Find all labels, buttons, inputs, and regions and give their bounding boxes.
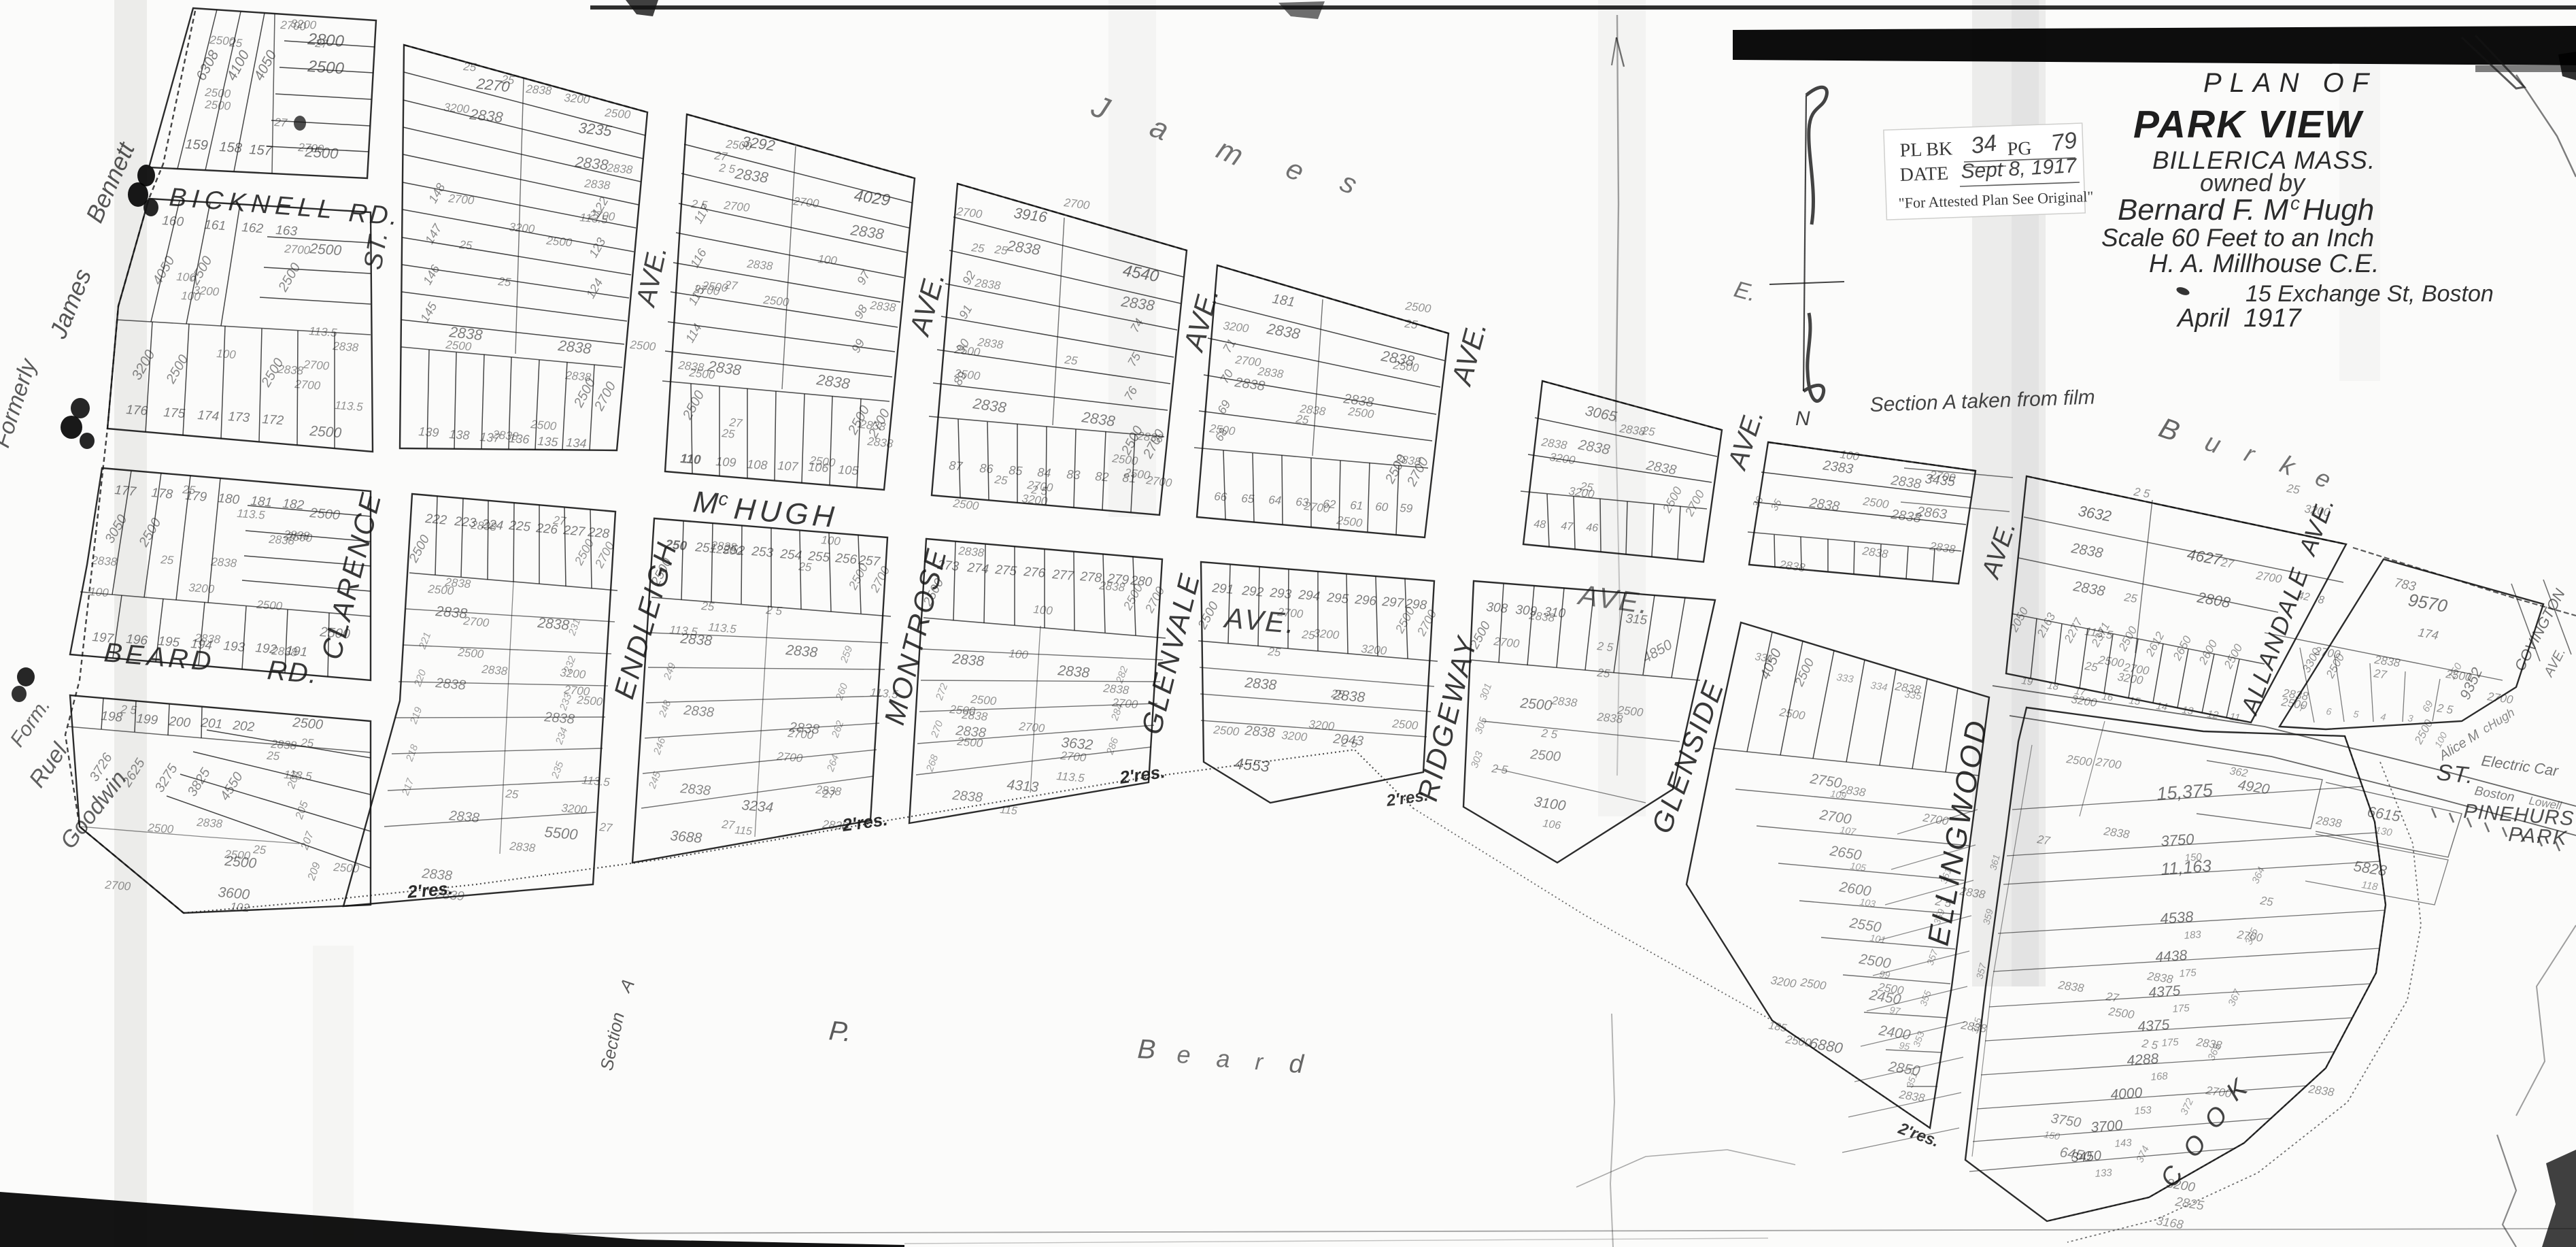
svg-text:47: 47 bbox=[1561, 520, 1574, 533]
svg-text:H. A. Millhouse C.E.: H. A. Millhouse C.E. bbox=[2149, 250, 2379, 278]
svg-text:4375: 4375 bbox=[2137, 1017, 2171, 1035]
svg-text:222: 222 bbox=[424, 512, 448, 528]
svg-text:256: 256 bbox=[834, 551, 858, 567]
svg-text:2838: 2838 bbox=[277, 363, 305, 378]
svg-text:25: 25 bbox=[721, 427, 736, 441]
svg-text:100: 100 bbox=[216, 347, 237, 361]
svg-text:3234: 3234 bbox=[741, 797, 775, 816]
svg-text:2838: 2838 bbox=[679, 781, 711, 799]
svg-text:61: 61 bbox=[1350, 499, 1363, 512]
svg-text:65: 65 bbox=[1241, 492, 1255, 505]
svg-text:168: 168 bbox=[2150, 1070, 2169, 1083]
svg-text:2838: 2838 bbox=[268, 533, 296, 548]
svg-text:c: c bbox=[717, 488, 729, 510]
svg-text:c: c bbox=[2290, 193, 2300, 214]
svg-text:27: 27 bbox=[2372, 667, 2388, 682]
svg-text:2 5: 2 5 bbox=[2435, 701, 2454, 716]
svg-text:227: 227 bbox=[562, 523, 587, 539]
svg-text:2500: 2500 bbox=[1391, 717, 1419, 732]
svg-text:15 Exchange St, Boston: 15 Exchange St, Boston bbox=[2245, 281, 2494, 307]
svg-text:3200: 3200 bbox=[443, 101, 471, 116]
svg-text:25: 25 bbox=[462, 60, 477, 74]
svg-text:2838: 2838 bbox=[492, 428, 520, 443]
svg-text:2500: 2500 bbox=[457, 646, 485, 661]
svg-text:2838: 2838 bbox=[525, 82, 553, 97]
svg-text:2838: 2838 bbox=[537, 615, 571, 633]
svg-text:25: 25 bbox=[994, 243, 1009, 257]
svg-text:27: 27 bbox=[273, 116, 288, 129]
svg-text:158: 158 bbox=[219, 139, 243, 156]
svg-text:202: 202 bbox=[232, 718, 256, 735]
svg-text:2838: 2838 bbox=[683, 703, 715, 720]
svg-text:2838: 2838 bbox=[564, 369, 592, 384]
svg-text:2500: 2500 bbox=[956, 735, 984, 750]
svg-text:275: 275 bbox=[994, 563, 1018, 579]
svg-text:P.: P. bbox=[828, 1016, 852, 1048]
svg-text:2 5: 2 5 bbox=[690, 197, 709, 212]
svg-text:15,375: 15,375 bbox=[2156, 780, 2214, 804]
svg-text:27: 27 bbox=[713, 149, 728, 163]
svg-text:46: 46 bbox=[1586, 522, 1599, 534]
svg-text:25: 25 bbox=[160, 553, 175, 567]
svg-text:2838: 2838 bbox=[1102, 682, 1130, 697]
svg-text:172: 172 bbox=[262, 412, 285, 428]
svg-text:291: 291 bbox=[1211, 581, 1234, 597]
svg-text:3200: 3200 bbox=[509, 220, 536, 235]
svg-text:2500: 2500 bbox=[333, 861, 360, 876]
svg-text:25: 25 bbox=[1596, 666, 1611, 680]
svg-text:2 5: 2 5 bbox=[765, 603, 783, 618]
svg-text:176: 176 bbox=[126, 403, 149, 418]
svg-text:2838: 2838 bbox=[951, 651, 985, 669]
svg-text:66: 66 bbox=[1214, 490, 1228, 503]
svg-text:183: 183 bbox=[2184, 929, 2202, 942]
svg-text:2500: 2500 bbox=[147, 821, 175, 836]
svg-text:2838: 2838 bbox=[821, 818, 849, 833]
svg-text:2838: 2838 bbox=[1244, 723, 1276, 741]
svg-text:250: 250 bbox=[664, 537, 688, 554]
svg-text:293: 293 bbox=[1269, 586, 1293, 602]
svg-text:27: 27 bbox=[724, 278, 739, 293]
svg-text:2700: 2700 bbox=[303, 358, 331, 373]
svg-text:25: 25 bbox=[994, 473, 1009, 487]
svg-text:d: d bbox=[1289, 1050, 1306, 1079]
svg-text:19: 19 bbox=[2020, 675, 2034, 688]
svg-text:175: 175 bbox=[2172, 1002, 2190, 1015]
svg-text:25: 25 bbox=[2083, 659, 2099, 674]
svg-text:292: 292 bbox=[1241, 584, 1265, 600]
svg-text:109: 109 bbox=[715, 454, 736, 469]
svg-text:83: 83 bbox=[1066, 467, 1081, 482]
svg-text:2500: 2500 bbox=[949, 703, 977, 718]
svg-text:200: 200 bbox=[168, 714, 192, 731]
svg-text:25: 25 bbox=[2258, 894, 2274, 909]
svg-text:25: 25 bbox=[505, 787, 520, 801]
svg-text:48: 48 bbox=[1533, 518, 1546, 531]
svg-text:27: 27 bbox=[2035, 833, 2051, 848]
svg-text:2838: 2838 bbox=[509, 839, 537, 854]
svg-text:175: 175 bbox=[2179, 967, 2197, 980]
svg-text:113.5: 113.5 bbox=[1056, 769, 1085, 785]
svg-text:95: 95 bbox=[1899, 1040, 1911, 1052]
svg-text:102: 102 bbox=[230, 900, 250, 914]
svg-text:M: M bbox=[692, 485, 719, 520]
svg-text:2839: 2839 bbox=[435, 887, 465, 904]
svg-text:87: 87 bbox=[949, 459, 964, 473]
svg-text:99: 99 bbox=[1879, 968, 1891, 980]
svg-text:100: 100 bbox=[817, 252, 838, 267]
svg-text:2700: 2700 bbox=[1018, 720, 1046, 735]
svg-text:2500: 2500 bbox=[629, 338, 657, 353]
svg-text:2500: 2500 bbox=[204, 98, 232, 113]
svg-text:107: 107 bbox=[777, 459, 799, 473]
svg-text:228: 228 bbox=[587, 525, 611, 542]
svg-text:3200: 3200 bbox=[188, 581, 216, 596]
svg-text:113.5: 113.5 bbox=[309, 325, 338, 339]
svg-text:2838: 2838 bbox=[1057, 663, 1091, 681]
svg-text:199: 199 bbox=[136, 712, 159, 728]
svg-text:PL BK: PL BK bbox=[1899, 138, 1953, 161]
svg-text:157: 157 bbox=[249, 142, 273, 159]
svg-text:115: 115 bbox=[734, 825, 753, 837]
svg-text:225: 225 bbox=[508, 518, 532, 535]
svg-text:2838: 2838 bbox=[957, 544, 985, 559]
svg-text:2838: 2838 bbox=[468, 105, 504, 126]
svg-text:2500: 2500 bbox=[292, 715, 324, 733]
svg-text:182: 182 bbox=[282, 497, 305, 513]
svg-text:2838: 2838 bbox=[1244, 675, 1278, 693]
svg-text:27: 27 bbox=[2104, 990, 2120, 1005]
svg-text:163: 163 bbox=[275, 223, 299, 239]
svg-text:2838: 2838 bbox=[271, 644, 299, 659]
svg-text:2700: 2700 bbox=[462, 614, 490, 629]
svg-text:Scale 60 Feet to an Inch: Scale 60 Feet to an Inch bbox=[2101, 224, 2374, 252]
svg-text:160: 160 bbox=[162, 214, 185, 229]
svg-text:153: 153 bbox=[2134, 1104, 2152, 1117]
svg-text:201: 201 bbox=[200, 716, 223, 732]
svg-text:25: 25 bbox=[1064, 353, 1079, 367]
svg-text:113.5: 113.5 bbox=[581, 774, 611, 789]
svg-text:2838: 2838 bbox=[543, 710, 575, 727]
svg-text:B: B bbox=[1137, 1034, 1157, 1065]
svg-text:5500: 5500 bbox=[544, 823, 579, 843]
svg-text:4538: 4538 bbox=[2160, 908, 2194, 927]
svg-text:3235: 3235 bbox=[577, 119, 613, 139]
svg-text:333: 333 bbox=[1835, 671, 1854, 685]
svg-text:25: 25 bbox=[228, 36, 243, 50]
svg-text:297: 297 bbox=[1381, 595, 1406, 611]
svg-text:25: 25 bbox=[182, 483, 197, 497]
svg-text:25: 25 bbox=[1330, 687, 1345, 701]
svg-text:273: 273 bbox=[936, 558, 960, 574]
svg-text:2838: 2838 bbox=[470, 518, 498, 533]
svg-text:2700: 2700 bbox=[787, 727, 815, 742]
svg-text:a: a bbox=[1216, 1044, 1231, 1073]
svg-text:115: 115 bbox=[1000, 804, 1018, 817]
svg-text:2500: 2500 bbox=[309, 505, 341, 523]
svg-text:100: 100 bbox=[89, 585, 109, 599]
svg-text:2838: 2838 bbox=[421, 866, 453, 884]
svg-text:100: 100 bbox=[1009, 647, 1029, 661]
svg-text:85: 85 bbox=[1009, 463, 1023, 478]
svg-text:296: 296 bbox=[1354, 593, 1378, 609]
svg-text:2 5: 2 5 bbox=[2140, 1037, 2159, 1052]
svg-text:295: 295 bbox=[1326, 591, 1350, 607]
svg-text:86: 86 bbox=[979, 461, 994, 476]
svg-text:2 5: 2 5 bbox=[1933, 895, 1952, 910]
svg-text:25: 25 bbox=[252, 843, 267, 857]
svg-text:27: 27 bbox=[2219, 556, 2235, 571]
svg-text:2500: 2500 bbox=[1529, 747, 1561, 765]
svg-text:2500: 2500 bbox=[1519, 695, 1553, 714]
svg-text:2838: 2838 bbox=[1098, 579, 1126, 594]
svg-text:2838: 2838 bbox=[90, 554, 118, 569]
svg-text:113.5: 113.5 bbox=[284, 768, 313, 783]
svg-text:315: 315 bbox=[1625, 612, 1648, 628]
svg-text:2500: 2500 bbox=[445, 338, 473, 353]
svg-text:25: 25 bbox=[300, 736, 315, 750]
svg-text:135: 135 bbox=[537, 434, 559, 449]
svg-text:3200: 3200 bbox=[1308, 718, 1336, 733]
svg-text:308: 308 bbox=[1486, 600, 1509, 616]
svg-text:2700: 2700 bbox=[104, 878, 132, 893]
svg-text:25: 25 bbox=[1640, 424, 1656, 439]
svg-text:277: 277 bbox=[1051, 567, 1076, 584]
svg-text:82: 82 bbox=[1095, 469, 1109, 484]
svg-text:4438: 4438 bbox=[2155, 948, 2188, 965]
svg-text:2 5: 2 5 bbox=[1340, 736, 1359, 750]
svg-text:193: 193 bbox=[223, 639, 246, 655]
svg-text:174: 174 bbox=[197, 408, 220, 424]
svg-text:2700: 2700 bbox=[588, 208, 616, 223]
svg-text:105: 105 bbox=[838, 463, 860, 478]
svg-text:2838: 2838 bbox=[710, 539, 738, 554]
svg-text:2838: 2838 bbox=[785, 642, 819, 661]
svg-text:2500: 2500 bbox=[224, 848, 252, 863]
svg-text:2500: 2500 bbox=[530, 418, 558, 433]
svg-text:2838: 2838 bbox=[210, 555, 238, 570]
svg-text:178: 178 bbox=[151, 486, 174, 502]
svg-text:3200: 3200 bbox=[1281, 729, 1308, 744]
svg-text:253: 253 bbox=[751, 544, 775, 561]
svg-text:274: 274 bbox=[966, 561, 989, 577]
svg-text:133: 133 bbox=[2095, 1167, 2113, 1180]
svg-text:3200: 3200 bbox=[1313, 627, 1340, 642]
svg-text:3200: 3200 bbox=[561, 801, 588, 816]
svg-text:177: 177 bbox=[114, 483, 138, 499]
svg-text:2700: 2700 bbox=[279, 18, 307, 33]
svg-text:27: 27 bbox=[314, 37, 329, 50]
svg-text:2838: 2838 bbox=[573, 153, 609, 173]
svg-text:2838: 2838 bbox=[435, 676, 467, 693]
svg-text:2838: 2838 bbox=[481, 663, 509, 678]
svg-text:2700: 2700 bbox=[1111, 696, 1139, 711]
svg-text:59: 59 bbox=[1400, 501, 1414, 515]
svg-text:DATE: DATE bbox=[1899, 163, 1949, 186]
svg-text:25: 25 bbox=[266, 749, 281, 763]
svg-text:2700: 2700 bbox=[294, 378, 322, 393]
svg-text:2 5: 2 5 bbox=[1491, 762, 1509, 777]
svg-text:N: N bbox=[1795, 408, 1810, 430]
svg-text:173: 173 bbox=[228, 410, 251, 425]
svg-text:108: 108 bbox=[747, 457, 768, 472]
svg-text:100: 100 bbox=[1033, 603, 1053, 617]
svg-text:3700: 3700 bbox=[2090, 1118, 2124, 1135]
svg-text:ST.: ST. bbox=[2435, 759, 2475, 789]
svg-text:3200: 3200 bbox=[560, 666, 587, 681]
svg-text:180: 180 bbox=[218, 491, 241, 508]
svg-text:110: 110 bbox=[680, 452, 702, 467]
svg-text:25: 25 bbox=[501, 73, 515, 87]
svg-text:4375: 4375 bbox=[2148, 983, 2182, 1001]
svg-text:25: 25 bbox=[458, 238, 473, 252]
svg-text:27: 27 bbox=[721, 818, 736, 832]
svg-text:2 5: 2 5 bbox=[1596, 639, 1614, 654]
svg-text:2838: 2838 bbox=[270, 737, 298, 752]
svg-text:100: 100 bbox=[1839, 448, 1860, 463]
svg-text:PARK VIEW: PARK VIEW bbox=[2133, 103, 2364, 146]
svg-text:3750: 3750 bbox=[2160, 831, 2195, 850]
svg-text:2500: 2500 bbox=[1213, 723, 1240, 738]
svg-text:334: 334 bbox=[1869, 680, 1888, 693]
svg-text:2838: 2838 bbox=[815, 783, 843, 798]
svg-text:2838: 2838 bbox=[951, 788, 983, 805]
svg-text:161: 161 bbox=[204, 218, 226, 233]
svg-text:2700: 2700 bbox=[284, 242, 311, 257]
svg-text:27: 27 bbox=[552, 514, 567, 528]
svg-text:2 5: 2 5 bbox=[1540, 727, 1559, 742]
svg-text:2700: 2700 bbox=[776, 750, 804, 765]
svg-text:134: 134 bbox=[566, 435, 587, 450]
svg-text:2 5: 2 5 bbox=[2132, 485, 2151, 501]
svg-text:276: 276 bbox=[1023, 565, 1047, 581]
svg-text:113.5: 113.5 bbox=[237, 507, 266, 522]
svg-text:113.5: 113.5 bbox=[708, 620, 737, 636]
svg-text:PLAN OF: PLAN OF bbox=[2203, 68, 2377, 98]
svg-text:25: 25 bbox=[1267, 645, 1282, 659]
svg-text:2500: 2500 bbox=[309, 423, 343, 441]
svg-text:4288: 4288 bbox=[2126, 1051, 2160, 1069]
svg-text:25: 25 bbox=[798, 560, 813, 574]
svg-text:64: 64 bbox=[1268, 493, 1282, 507]
svg-text:3200: 3200 bbox=[1361, 642, 1388, 657]
svg-text:PARK: PARK bbox=[2508, 823, 2569, 850]
svg-text:100: 100 bbox=[821, 533, 841, 548]
svg-text:60: 60 bbox=[1375, 500, 1389, 514]
svg-text:34: 34 bbox=[1969, 130, 1999, 159]
svg-text:79: 79 bbox=[2050, 127, 2079, 156]
svg-text:RD.: RD. bbox=[266, 655, 319, 689]
svg-text:175: 175 bbox=[2161, 1036, 2180, 1049]
svg-text:2500: 2500 bbox=[256, 598, 284, 613]
svg-text:4000: 4000 bbox=[2110, 1085, 2143, 1103]
svg-text:11,163: 11,163 bbox=[2160, 857, 2211, 879]
svg-text:159: 159 bbox=[185, 137, 209, 153]
svg-text:2838: 2838 bbox=[556, 337, 592, 357]
svg-text:3200: 3200 bbox=[193, 284, 220, 299]
svg-text:April 1917: April 1917 bbox=[2176, 304, 2303, 333]
svg-text:e: e bbox=[1176, 1040, 1191, 1069]
svg-text:2 5: 2 5 bbox=[120, 703, 137, 717]
svg-text:3688: 3688 bbox=[670, 828, 703, 846]
svg-text:139: 139 bbox=[418, 425, 439, 439]
svg-text:4553: 4553 bbox=[1234, 754, 1270, 775]
svg-text:2700: 2700 bbox=[1276, 605, 1304, 620]
svg-text:2700: 2700 bbox=[563, 683, 591, 698]
svg-text:2500: 2500 bbox=[604, 106, 632, 121]
svg-text:25: 25 bbox=[1404, 317, 1419, 331]
svg-text:175: 175 bbox=[163, 405, 186, 421]
svg-text:2500: 2500 bbox=[309, 241, 343, 259]
svg-text:4313: 4313 bbox=[1006, 777, 1040, 795]
svg-text:2500: 2500 bbox=[307, 57, 345, 78]
svg-text:Hugh: Hugh bbox=[2303, 193, 2374, 227]
svg-text:2700: 2700 bbox=[447, 192, 475, 207]
svg-text:2700: 2700 bbox=[1060, 749, 1087, 764]
svg-text:162: 162 bbox=[241, 220, 265, 236]
svg-text:138: 138 bbox=[449, 427, 470, 442]
svg-text:RD.: RD. bbox=[348, 199, 401, 231]
svg-text:2500: 2500 bbox=[545, 234, 573, 249]
svg-text:2 5: 2 5 bbox=[718, 161, 736, 176]
svg-text:2838: 2838 bbox=[448, 808, 480, 826]
svg-text:18: 18 bbox=[2046, 680, 2060, 693]
svg-text:27: 27 bbox=[598, 820, 613, 835]
svg-text:25: 25 bbox=[2285, 482, 2301, 497]
svg-text:113.5: 113.5 bbox=[335, 399, 364, 414]
svg-text:3200: 3200 bbox=[564, 91, 591, 106]
svg-text:25: 25 bbox=[970, 241, 986, 255]
svg-text:294: 294 bbox=[1298, 588, 1321, 604]
svg-text:2838: 2838 bbox=[583, 177, 611, 192]
svg-text:2838: 2838 bbox=[606, 161, 634, 176]
svg-text:2838: 2838 bbox=[444, 576, 472, 591]
svg-text:25: 25 bbox=[2122, 591, 2138, 605]
svg-text:100: 100 bbox=[176, 270, 197, 284]
svg-text:2838: 2838 bbox=[194, 631, 222, 646]
svg-text:2700: 2700 bbox=[297, 141, 325, 156]
svg-text:84: 84 bbox=[1037, 465, 1051, 480]
svg-text:113.5: 113.5 bbox=[870, 686, 899, 701]
svg-text:143: 143 bbox=[2114, 1137, 2133, 1150]
svg-text:25: 25 bbox=[497, 275, 512, 289]
svg-text:Bernard F. M: Bernard F. M bbox=[2118, 193, 2288, 227]
svg-text:113.5: 113.5 bbox=[669, 623, 698, 639]
svg-text:2838: 2838 bbox=[332, 339, 360, 354]
svg-text:2838: 2838 bbox=[196, 816, 224, 831]
svg-text:25: 25 bbox=[700, 599, 715, 614]
svg-text:42: 42 bbox=[2297, 590, 2311, 603]
